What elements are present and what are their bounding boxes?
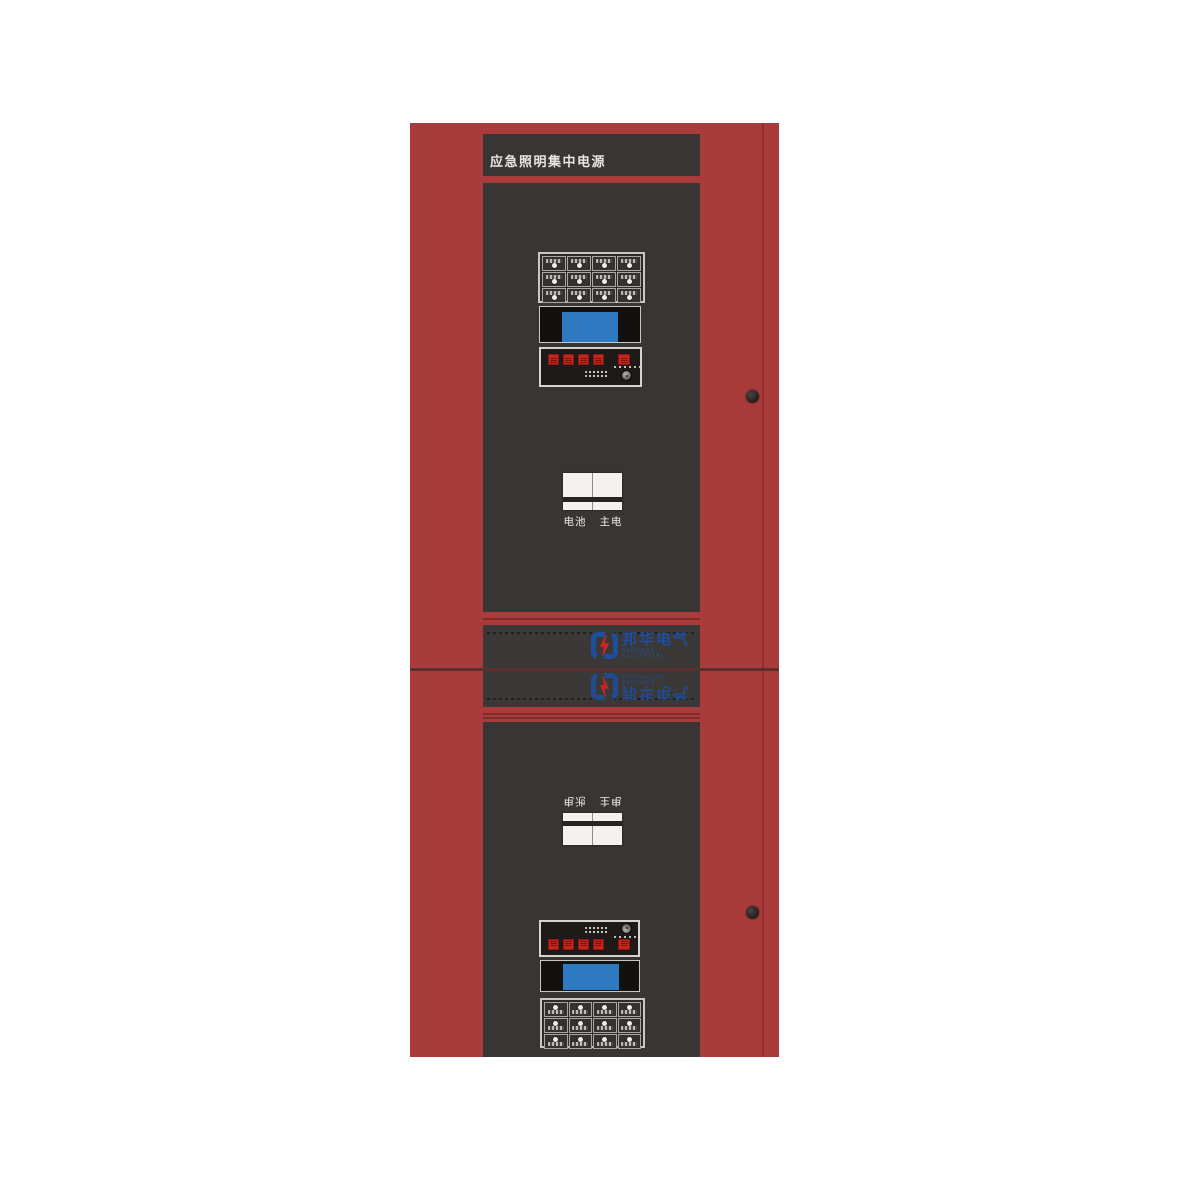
- key-label-mark: [572, 1026, 588, 1030]
- keypad-button[interactable]: [618, 1002, 642, 1017]
- keypad-button[interactable]: [567, 288, 591, 303]
- upper-lcd-display: [539, 306, 641, 343]
- key-label-mark: [597, 1026, 613, 1030]
- upper-indicator-panel: [539, 347, 642, 387]
- key-label-mark: [621, 1010, 637, 1014]
- brand-name-en: BANGHUA ELECTRICAL: [622, 673, 700, 683]
- upper-keypad: [538, 252, 645, 303]
- cabinet-seam: [483, 717, 700, 719]
- switch-band: [563, 497, 622, 502]
- brand-name-en: BANGHUA ELECTRICAL: [622, 649, 700, 659]
- led-glyph: [565, 942, 572, 948]
- key-label-mark: [621, 1042, 637, 1046]
- key-cap: [577, 295, 582, 300]
- status-led: [578, 939, 589, 950]
- upper-unit-panel: 电池 主电: [483, 183, 700, 612]
- status-led: [563, 354, 574, 365]
- keypad-button[interactable]: [567, 272, 591, 287]
- lightning-bolt-icon: [591, 673, 618, 700]
- key-cap: [577, 263, 582, 268]
- key-label-mark: [621, 1026, 637, 1030]
- status-led-row: [548, 939, 630, 950]
- key-cap: [577, 279, 582, 284]
- led-glyph: [621, 357, 628, 363]
- lower-rocker-switch-block: [563, 813, 622, 845]
- led-glyph: [550, 357, 557, 363]
- keypad-button[interactable]: [542, 288, 566, 303]
- upper-lcd-screen: [562, 312, 618, 342]
- keypad-button[interactable]: [542, 272, 566, 287]
- mounting-screw: [746, 906, 759, 919]
- upper-rocker-switch-block: [563, 473, 622, 510]
- status-led-row: [548, 354, 630, 365]
- knob-scale: [614, 936, 640, 938]
- cabinet-seam-vertical: [762, 123, 764, 1057]
- keypad-button[interactable]: [592, 288, 616, 303]
- led-glyph: [595, 942, 602, 948]
- key-cap: [627, 279, 632, 284]
- keypad-button[interactable]: [593, 1034, 617, 1049]
- keypad-button[interactable]: [569, 1018, 593, 1033]
- cabinet-seam: [483, 618, 700, 620]
- key-cap: [602, 295, 607, 300]
- lower-unit-panel: 电池 主电: [483, 722, 700, 1057]
- lower-indicator-panel: [539, 920, 640, 957]
- lower-lcd-display: [540, 960, 640, 992]
- keypad-button[interactable]: [592, 256, 616, 271]
- cabinet-seam: [483, 713, 700, 715]
- keypad-button[interactable]: [544, 1018, 568, 1033]
- status-led: [548, 939, 559, 950]
- indicator-caption: [585, 925, 609, 933]
- brand-band-top: 邦华电气 BANGHUA ELECTRICAL: [483, 625, 700, 668]
- status-led: [548, 354, 559, 365]
- key-label-mark: [597, 1042, 613, 1046]
- control-knob[interactable]: [621, 370, 632, 381]
- key-cap: [602, 263, 607, 268]
- brand-band-bottom: 邦华电气 BANGHUA ELECTRICAL: [483, 671, 700, 707]
- led-glyph: [580, 357, 587, 363]
- mains-switch[interactable]: [593, 473, 623, 510]
- lower-switch-label: 电池 主电: [523, 794, 663, 809]
- led-glyph: [580, 942, 587, 948]
- indicator-caption: [585, 371, 609, 379]
- led-glyph: [565, 357, 572, 363]
- brand-logo: 邦华电气 BANGHUA ELECTRICAL: [591, 632, 700, 659]
- key-cap: [552, 295, 557, 300]
- device-title: 应急照明集中电源: [483, 141, 606, 170]
- key-label-mark: [548, 1026, 564, 1030]
- keypad-button[interactable]: [593, 1018, 617, 1033]
- key-label-mark: [572, 1042, 588, 1046]
- upper-switch-label: 电池 主电: [523, 514, 663, 529]
- lower-keypad: [540, 998, 645, 1048]
- key-label-mark: [548, 1042, 564, 1046]
- key-label-mark: [597, 1010, 613, 1014]
- mains-switch[interactable]: [593, 813, 623, 845]
- keypad-button[interactable]: [592, 272, 616, 287]
- led-glyph: [550, 942, 557, 948]
- keypad-button[interactable]: [593, 1002, 617, 1017]
- switch-band: [563, 821, 622, 826]
- status-led: [618, 354, 630, 365]
- keypad-button[interactable]: [569, 1034, 593, 1049]
- brand-name-cn: 邦华电气: [622, 685, 700, 700]
- led-glyph: [621, 942, 628, 948]
- key-cap: [552, 279, 557, 284]
- keypad-button[interactable]: [618, 1034, 642, 1049]
- keypad-button[interactable]: [569, 1002, 593, 1017]
- keypad-button[interactable]: [618, 1018, 642, 1033]
- key-cap: [552, 263, 557, 268]
- status-led: [593, 939, 604, 950]
- brand-name-cn: 邦华电气: [622, 632, 700, 647]
- keypad-button[interactable]: [544, 1002, 568, 1017]
- status-led: [593, 354, 604, 365]
- mounting-screw: [746, 390, 759, 403]
- led-glyph: [595, 357, 602, 363]
- keypad-button[interactable]: [617, 288, 641, 303]
- key-cap: [627, 263, 632, 268]
- lower-lcd-screen: [563, 964, 619, 990]
- status-led: [578, 354, 589, 365]
- control-knob[interactable]: [621, 923, 632, 934]
- status-led: [618, 939, 630, 950]
- keypad-button[interactable]: [617, 272, 641, 287]
- key-label-mark: [572, 1010, 588, 1014]
- keypad-button[interactable]: [567, 256, 591, 271]
- brand-logo-mirrored: 邦华电气 BANGHUA ELECTRICAL: [591, 673, 700, 700]
- keypad-button[interactable]: [617, 256, 641, 271]
- battery-switch[interactable]: [563, 813, 593, 845]
- keypad-button[interactable]: [544, 1034, 568, 1049]
- title-panel: 应急照明集中电源: [483, 134, 700, 176]
- power-cabinet: 应急照明集中电源 电池 主电: [410, 123, 779, 1057]
- key-label-mark: [548, 1010, 564, 1014]
- key-cap: [602, 279, 607, 284]
- battery-switch[interactable]: [563, 473, 593, 510]
- knob-scale: [614, 366, 640, 368]
- lightning-bolt-icon: [591, 632, 618, 659]
- keypad-button[interactable]: [542, 256, 566, 271]
- key-cap: [627, 295, 632, 300]
- status-led: [563, 939, 574, 950]
